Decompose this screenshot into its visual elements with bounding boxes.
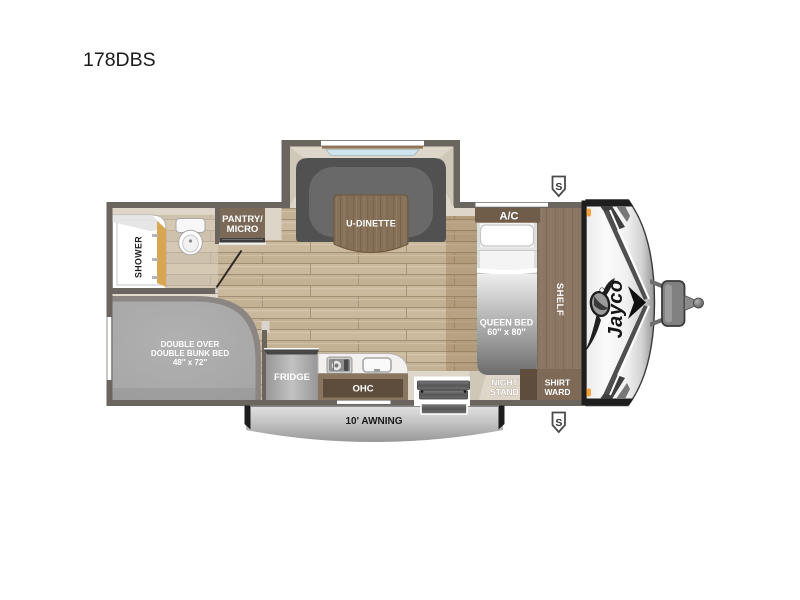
svg-text:U-DINETTE: U-DINETTE [346, 219, 396, 229]
svg-text:DOUBLE OVER: DOUBLE OVER [161, 340, 220, 349]
svg-text:S: S [555, 181, 562, 193]
svg-text:SHOWER: SHOWER [134, 236, 144, 278]
svg-text:QUEEN BED: QUEEN BED [480, 318, 534, 328]
svg-text:NIGHT: NIGHT [491, 378, 518, 388]
svg-text:FRIDGE: FRIDGE [274, 372, 310, 383]
svg-text:178DBS: 178DBS [83, 49, 156, 71]
svg-text:STAND: STAND [490, 387, 519, 397]
svg-text:60'' x 80'': 60'' x 80'' [487, 327, 526, 337]
svg-text:S: S [555, 417, 562, 429]
svg-text:OHC: OHC [352, 384, 373, 395]
svg-text:A/C: A/C [500, 211, 519, 223]
svg-text:10' AWNING: 10' AWNING [345, 416, 402, 427]
svg-text:WARD: WARD [545, 387, 571, 397]
svg-text:48'' x 72'': 48'' x 72'' [173, 358, 207, 367]
svg-text:SHIRT: SHIRT [545, 378, 571, 388]
svg-text:SHELF: SHELF [554, 283, 565, 316]
svg-text:MICRO: MICRO [227, 224, 259, 235]
svg-text:DOUBLE BUNK BED: DOUBLE BUNK BED [151, 349, 229, 358]
